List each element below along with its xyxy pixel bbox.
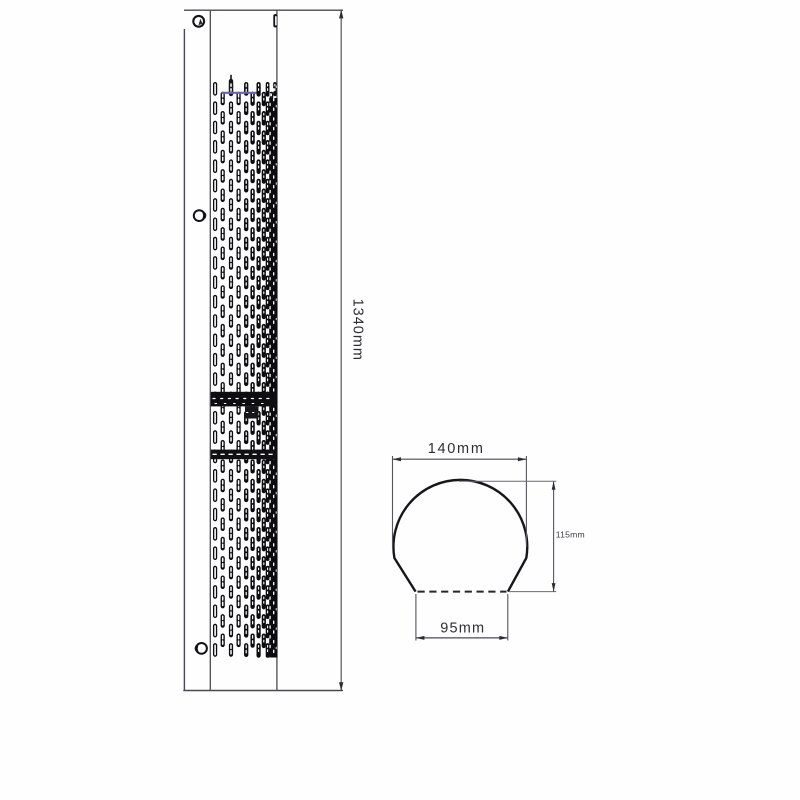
svg-text:95mm: 95mm [440, 620, 485, 636]
svg-text:1340mm: 1340mm [350, 299, 366, 361]
svg-text:115mm: 115mm [556, 529, 585, 539]
svg-text:140mm: 140mm [428, 441, 485, 457]
